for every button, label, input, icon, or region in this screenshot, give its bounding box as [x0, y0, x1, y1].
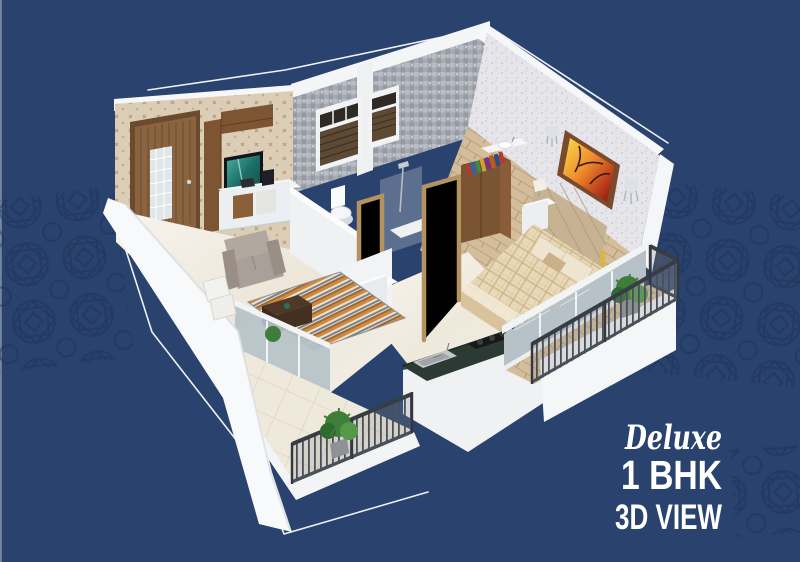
caption-subline: 3D VIEW [615, 498, 722, 537]
small-plant [265, 326, 281, 342]
table-decor [284, 303, 290, 309]
floor-plan-3d-scene: Deluxe 1 BHK 3D VIEW [0, 0, 800, 562]
caption-headline: 1 BHK [621, 452, 722, 498]
caption-block: Deluxe 1 BHK 3D VIEW [615, 418, 722, 537]
photo-frame-icon [262, 169, 274, 186]
door-handle-icon [187, 180, 191, 184]
wardrobe [461, 151, 511, 243]
bathroom-window-2 [369, 85, 399, 149]
poster-canvas: Deluxe 1 BHK 3D VIEW [0, 0, 800, 562]
